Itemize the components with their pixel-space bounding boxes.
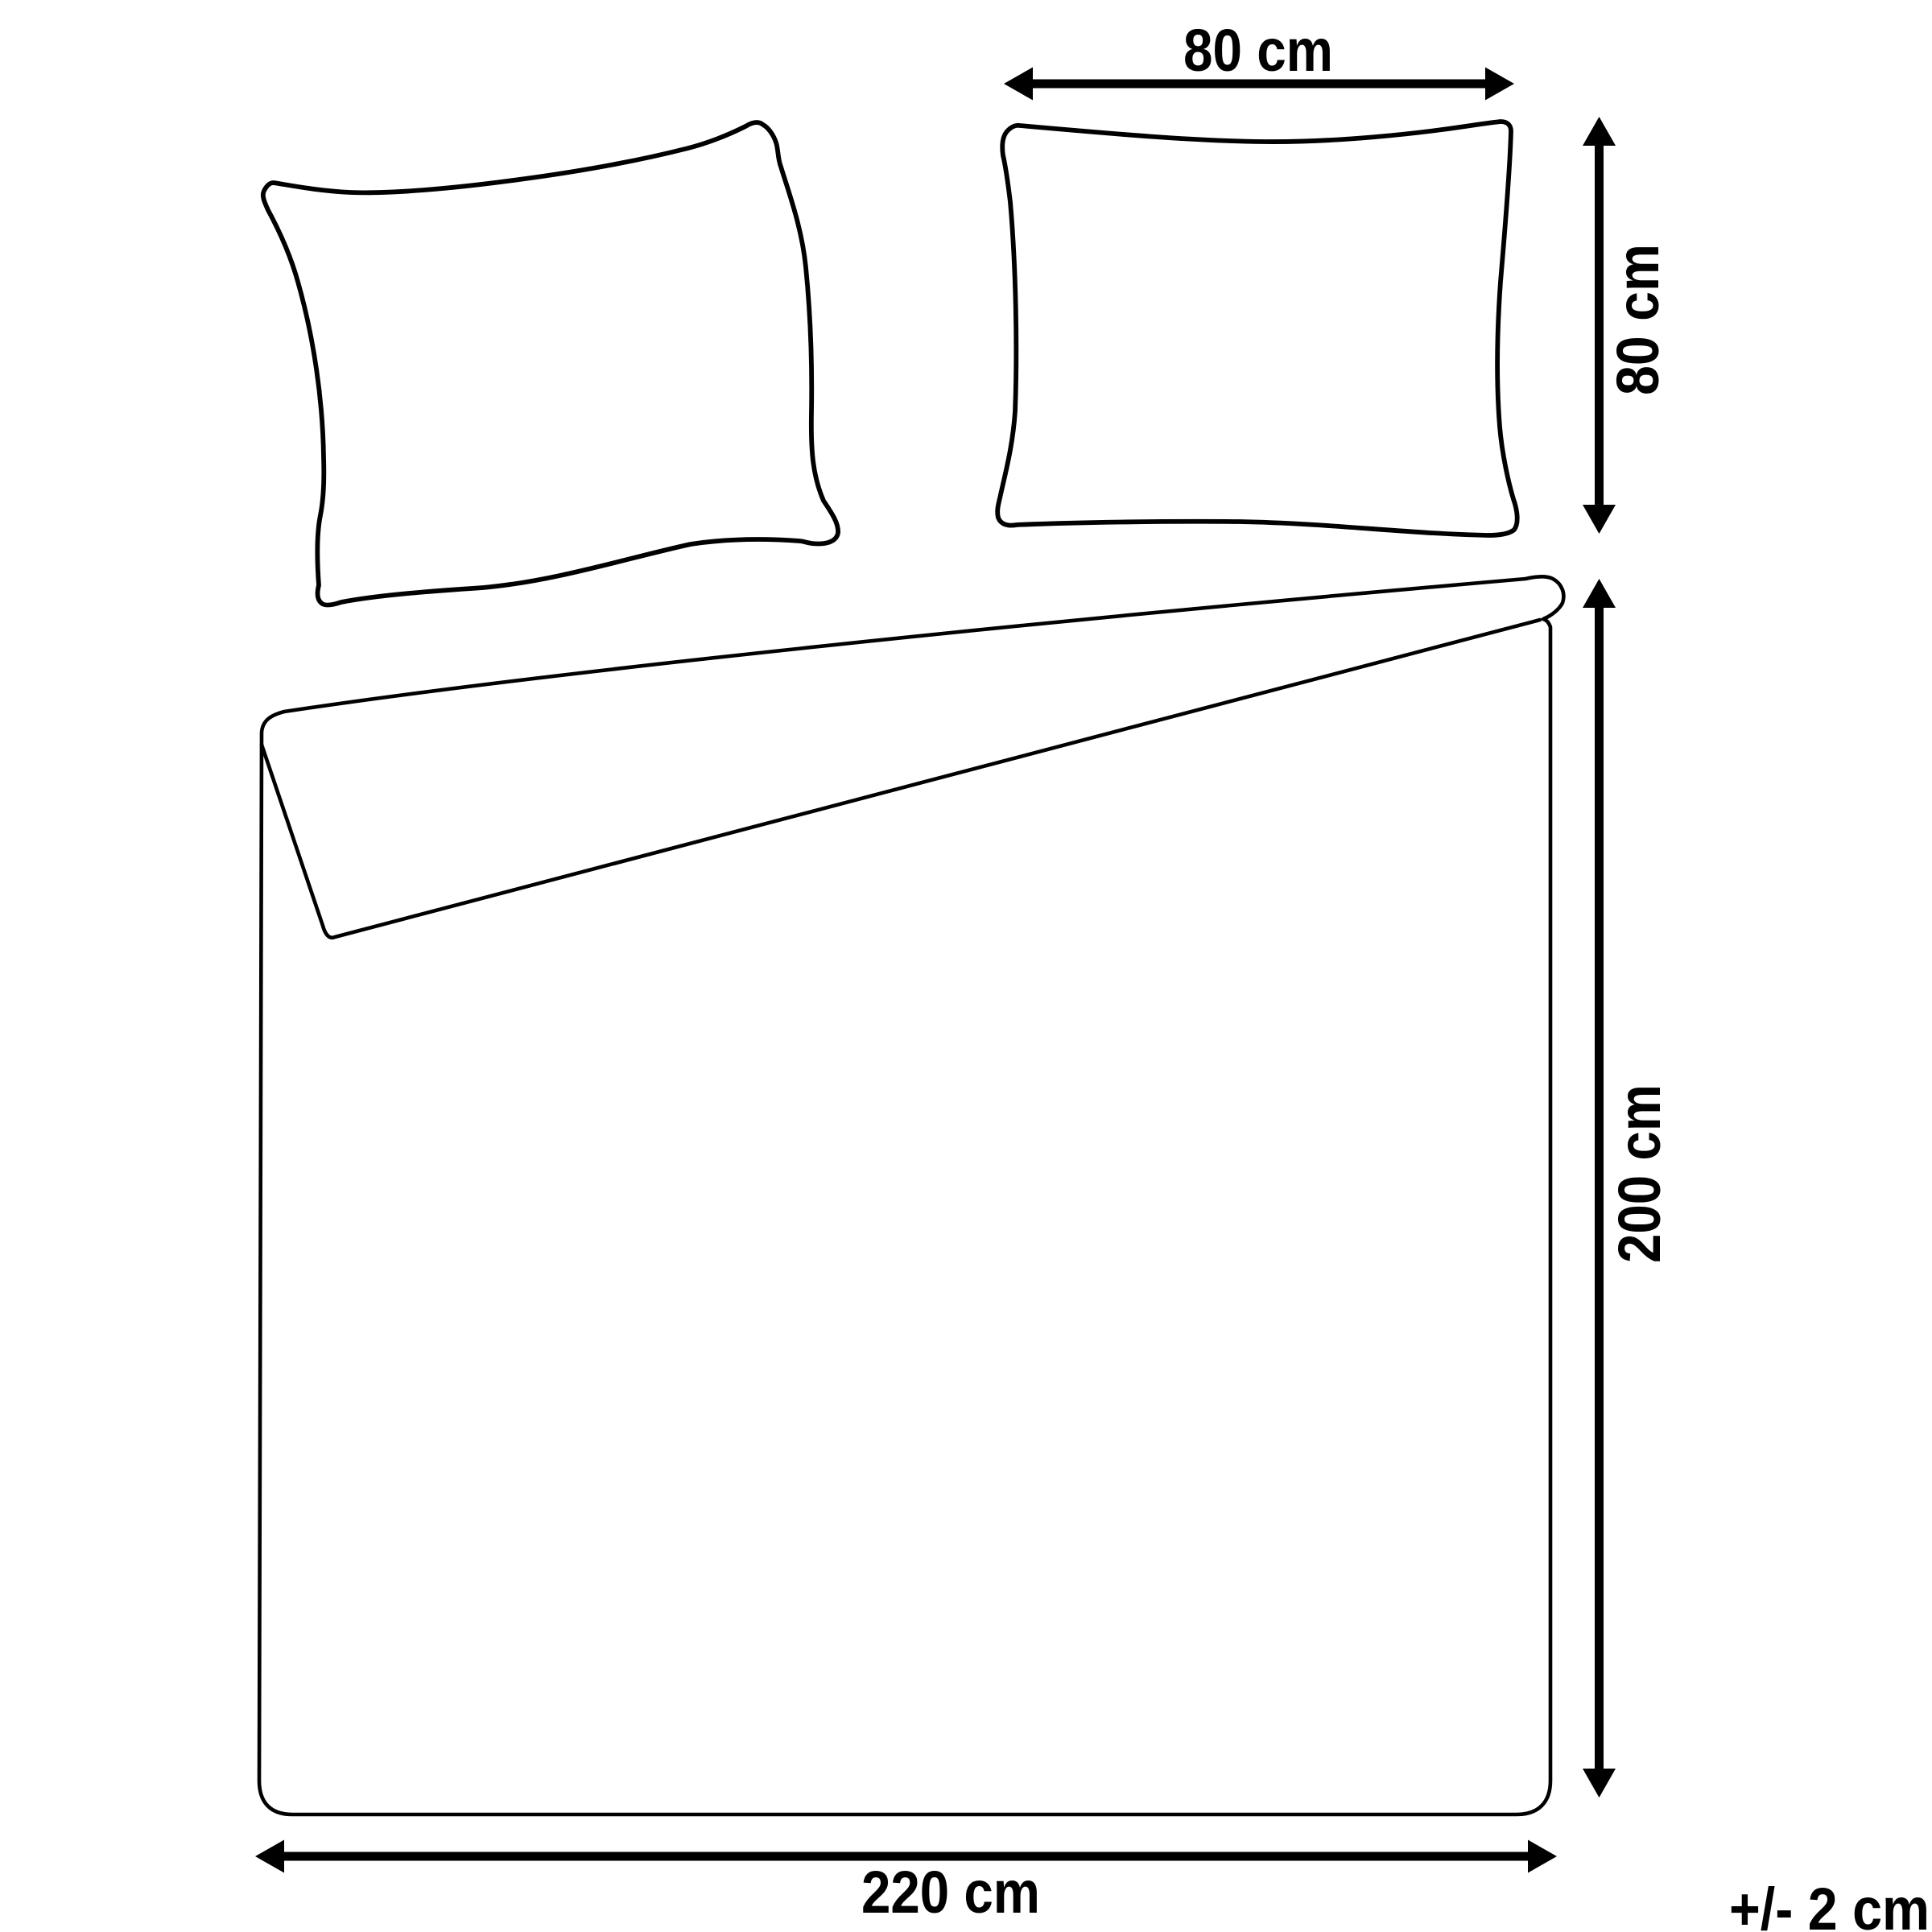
svg-text:200 cm: 200 cm — [1606, 1084, 1673, 1263]
svg-text:80 cm: 80 cm — [1604, 244, 1671, 395]
svg-text:80 cm: 80 cm — [1183, 17, 1333, 84]
svg-text:220 cm: 220 cm — [861, 1859, 1040, 1926]
svg-text:+/- 2 cm: +/- 2 cm — [1729, 1876, 1930, 1932]
